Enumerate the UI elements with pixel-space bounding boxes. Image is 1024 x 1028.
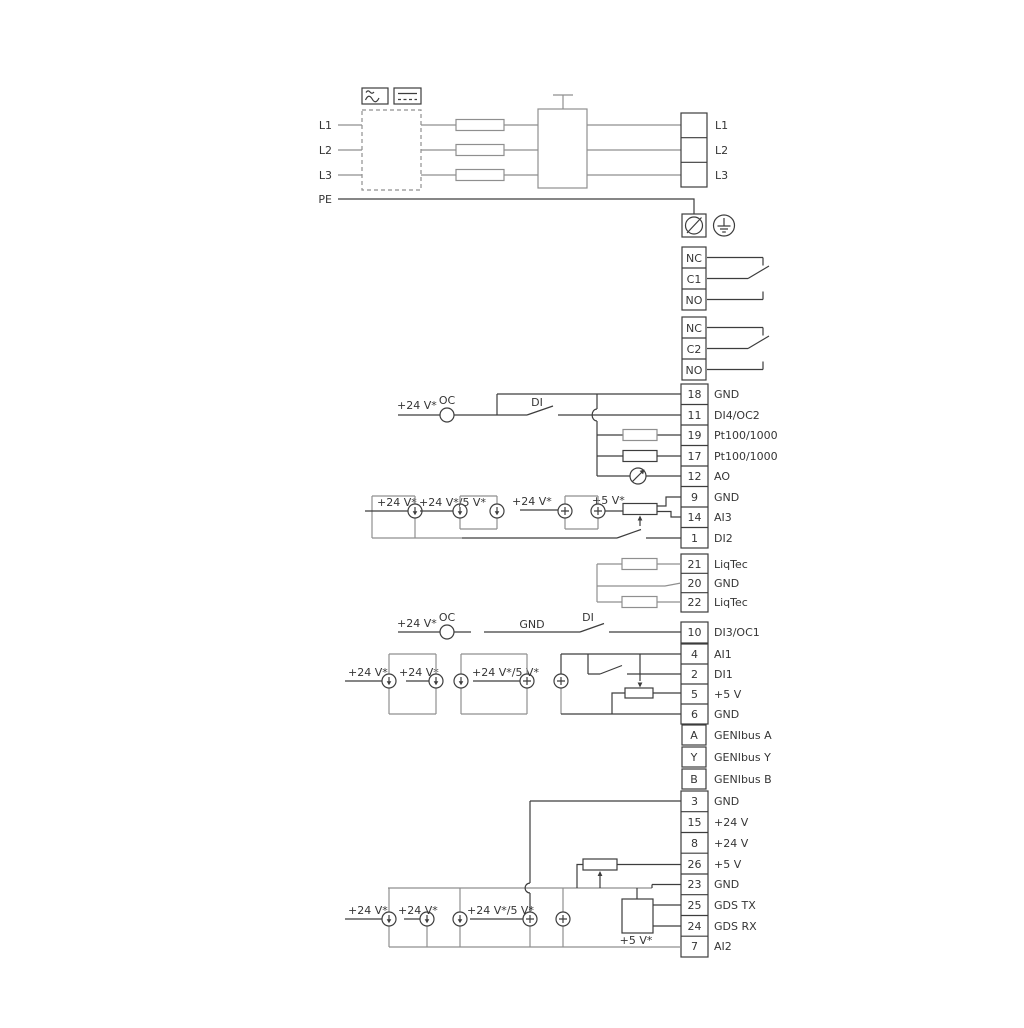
dc-symbol-box (394, 88, 421, 104)
open-collector-icon (440, 625, 454, 639)
liqtec-sensor-resistor (622, 559, 657, 570)
terminal-label: +5 V (714, 858, 742, 871)
terminal-label: DI4/OC2 (714, 409, 760, 422)
terminal-label: GND (714, 491, 739, 504)
terminal-number: 7 (691, 940, 698, 953)
supply-annotation: +24 V*/5 V* (472, 666, 539, 679)
wiring-diagram-canvas: L1 L2 L3 PE L1 L2 L3 NC C1 NO NC C2 NO 1… (0, 0, 1024, 1024)
phase-input-label: L3 (319, 169, 332, 182)
terminal-label: GDS RX (714, 920, 757, 933)
gds-sensor-box (622, 899, 653, 933)
supply-annotation: +5 V* (620, 934, 653, 947)
terminal-label: GDS TX (714, 899, 756, 912)
terminal-label: GND (714, 795, 739, 808)
mains-terminal-block (681, 113, 707, 187)
terminal-label: AI3 (714, 511, 732, 524)
phase-output-label: L2 (715, 144, 728, 157)
terminal-number: B (690, 773, 698, 786)
terminal-label: AI2 (714, 940, 732, 953)
terminal-number: 24 (688, 920, 702, 933)
potentiometer-ai3 (623, 504, 657, 515)
terminal-number: 12 (688, 470, 702, 483)
terminal-number: A (690, 729, 698, 742)
terminal-label: GND (714, 708, 739, 721)
wiring-diagram: L1 L2 L3 PE L1 L2 L3 NC C1 NO NC C2 NO 1… (0, 0, 1024, 1024)
main-switch-box (538, 109, 587, 188)
relay1-changeover-contact (707, 258, 769, 300)
terminal-number: Y (690, 751, 698, 764)
wiper-arrow-down (638, 683, 643, 688)
supply-annotation: +24 V*/5 V* (419, 496, 486, 509)
open-collector-annotation: OC (439, 611, 456, 624)
relay2-terminal-label: NC (686, 322, 702, 335)
potentiometer-wiper-arrow (638, 516, 643, 521)
phase-input-label: L1 (319, 119, 332, 132)
terminal-label: GENIbus Y (714, 751, 771, 764)
terminal-number: 6 (691, 708, 698, 721)
terminal-label: LiqTec (714, 596, 748, 609)
terminal-label: Pt100/1000 (714, 450, 778, 463)
terminal-label: DI1 (714, 668, 733, 681)
supply-annotation: +24 V* (512, 495, 552, 508)
fuse-l1 (456, 120, 504, 131)
pt100-sensor-resistor (623, 451, 657, 462)
terminal-number: 21 (688, 558, 702, 571)
earth-ground-glyph (718, 218, 731, 232)
digital-input-annotation: DI (582, 611, 594, 624)
terminal-label: GENIbus B (714, 773, 772, 786)
ground-annotation: GND (519, 618, 544, 631)
relay2-terminal-label: C2 (687, 343, 702, 356)
terminal-number: 15 (688, 816, 702, 829)
terminal-number: 19 (688, 429, 702, 442)
current-source-icon (454, 674, 468, 688)
potentiometer-wiper-arrow (598, 871, 603, 876)
fuse-l3 (456, 170, 504, 181)
terminal-number: 25 (688, 899, 702, 912)
relay2-terminal-label: NO (686, 364, 703, 377)
terminal-number: 18 (688, 388, 702, 401)
terminal-number: 4 (691, 648, 698, 661)
terminal-number: 17 (688, 450, 702, 463)
terminal-number: 5 (691, 688, 698, 701)
current-source-icon (382, 674, 396, 688)
voltage-source-icon (558, 504, 572, 518)
digital-input-annotation: DI (531, 396, 543, 409)
relay2-changeover-contact (707, 328, 769, 370)
terminal-label: DI3/OC1 (714, 626, 760, 639)
voltage-source-icon (556, 912, 570, 926)
supply-annotation: +24 V* (397, 617, 437, 630)
meter-needle (633, 472, 643, 482)
relay1-terminal-label: NC (686, 252, 702, 265)
voltage-source-icon (554, 674, 568, 688)
open-collector-annotation: OC (439, 394, 456, 407)
supply-annotation: +24 V* (348, 666, 388, 679)
terminal-label: GND (714, 388, 739, 401)
relay1-terminal-label: C1 (687, 273, 702, 286)
terminal-label: +5 V (714, 688, 742, 701)
terminal-number: 1 (691, 532, 698, 545)
mains-filter-box (362, 110, 421, 190)
current-source-icon (453, 912, 467, 926)
terminal-number: 3 (691, 795, 698, 808)
terminal-number: 14 (688, 511, 702, 524)
supply-annotation: +24 V* (397, 399, 437, 412)
supply-annotation: +24 V* (348, 904, 388, 917)
terminal-label: Pt100/1000 (714, 429, 778, 442)
terminal-number: 10 (688, 626, 702, 639)
relay1-terminal-label: NO (686, 294, 703, 307)
pe-wire (338, 199, 694, 214)
terminal-label: +24 V (714, 837, 749, 850)
terminal-number: 2 (691, 668, 698, 681)
terminal-label: LiqTec (714, 558, 748, 571)
open-collector-icon (440, 408, 454, 422)
terminal-number: 22 (688, 596, 702, 609)
terminal-label: GENIbus A (714, 729, 772, 742)
terminal-label: +24 V (714, 816, 749, 829)
phase-output-label: L3 (715, 169, 728, 182)
pe-input-label: PE (318, 193, 332, 206)
terminal-label: GND (714, 878, 739, 891)
pt100-sensor-resistor (623, 430, 657, 441)
phase-output-label: L1 (715, 119, 728, 132)
supply-annotation: +24 V* (377, 496, 417, 509)
fuse-l2 (456, 145, 504, 156)
terminal-number: 23 (688, 878, 702, 891)
terminal-number: 8 (691, 837, 698, 850)
phase-input-label: L2 (319, 144, 332, 157)
terminal-number: 20 (688, 577, 702, 590)
potentiometer-ai1 (625, 688, 653, 698)
liqtec-sensor-resistor (622, 597, 657, 608)
potentiometer-5v (583, 859, 617, 870)
current-source-icon (490, 504, 504, 518)
terminal-label: AO (714, 470, 730, 483)
terminal-label: GND (714, 577, 739, 590)
terminal-label: AI1 (714, 648, 732, 661)
current-source-icon (382, 912, 396, 926)
terminal-number: 26 (688, 858, 702, 871)
supply-annotation: +24 V* (399, 666, 439, 679)
terminal-label: DI2 (714, 532, 733, 545)
ai1-option-rails (389, 654, 561, 714)
terminal-number: 9 (691, 491, 698, 504)
terminal-number: 11 (688, 409, 702, 422)
